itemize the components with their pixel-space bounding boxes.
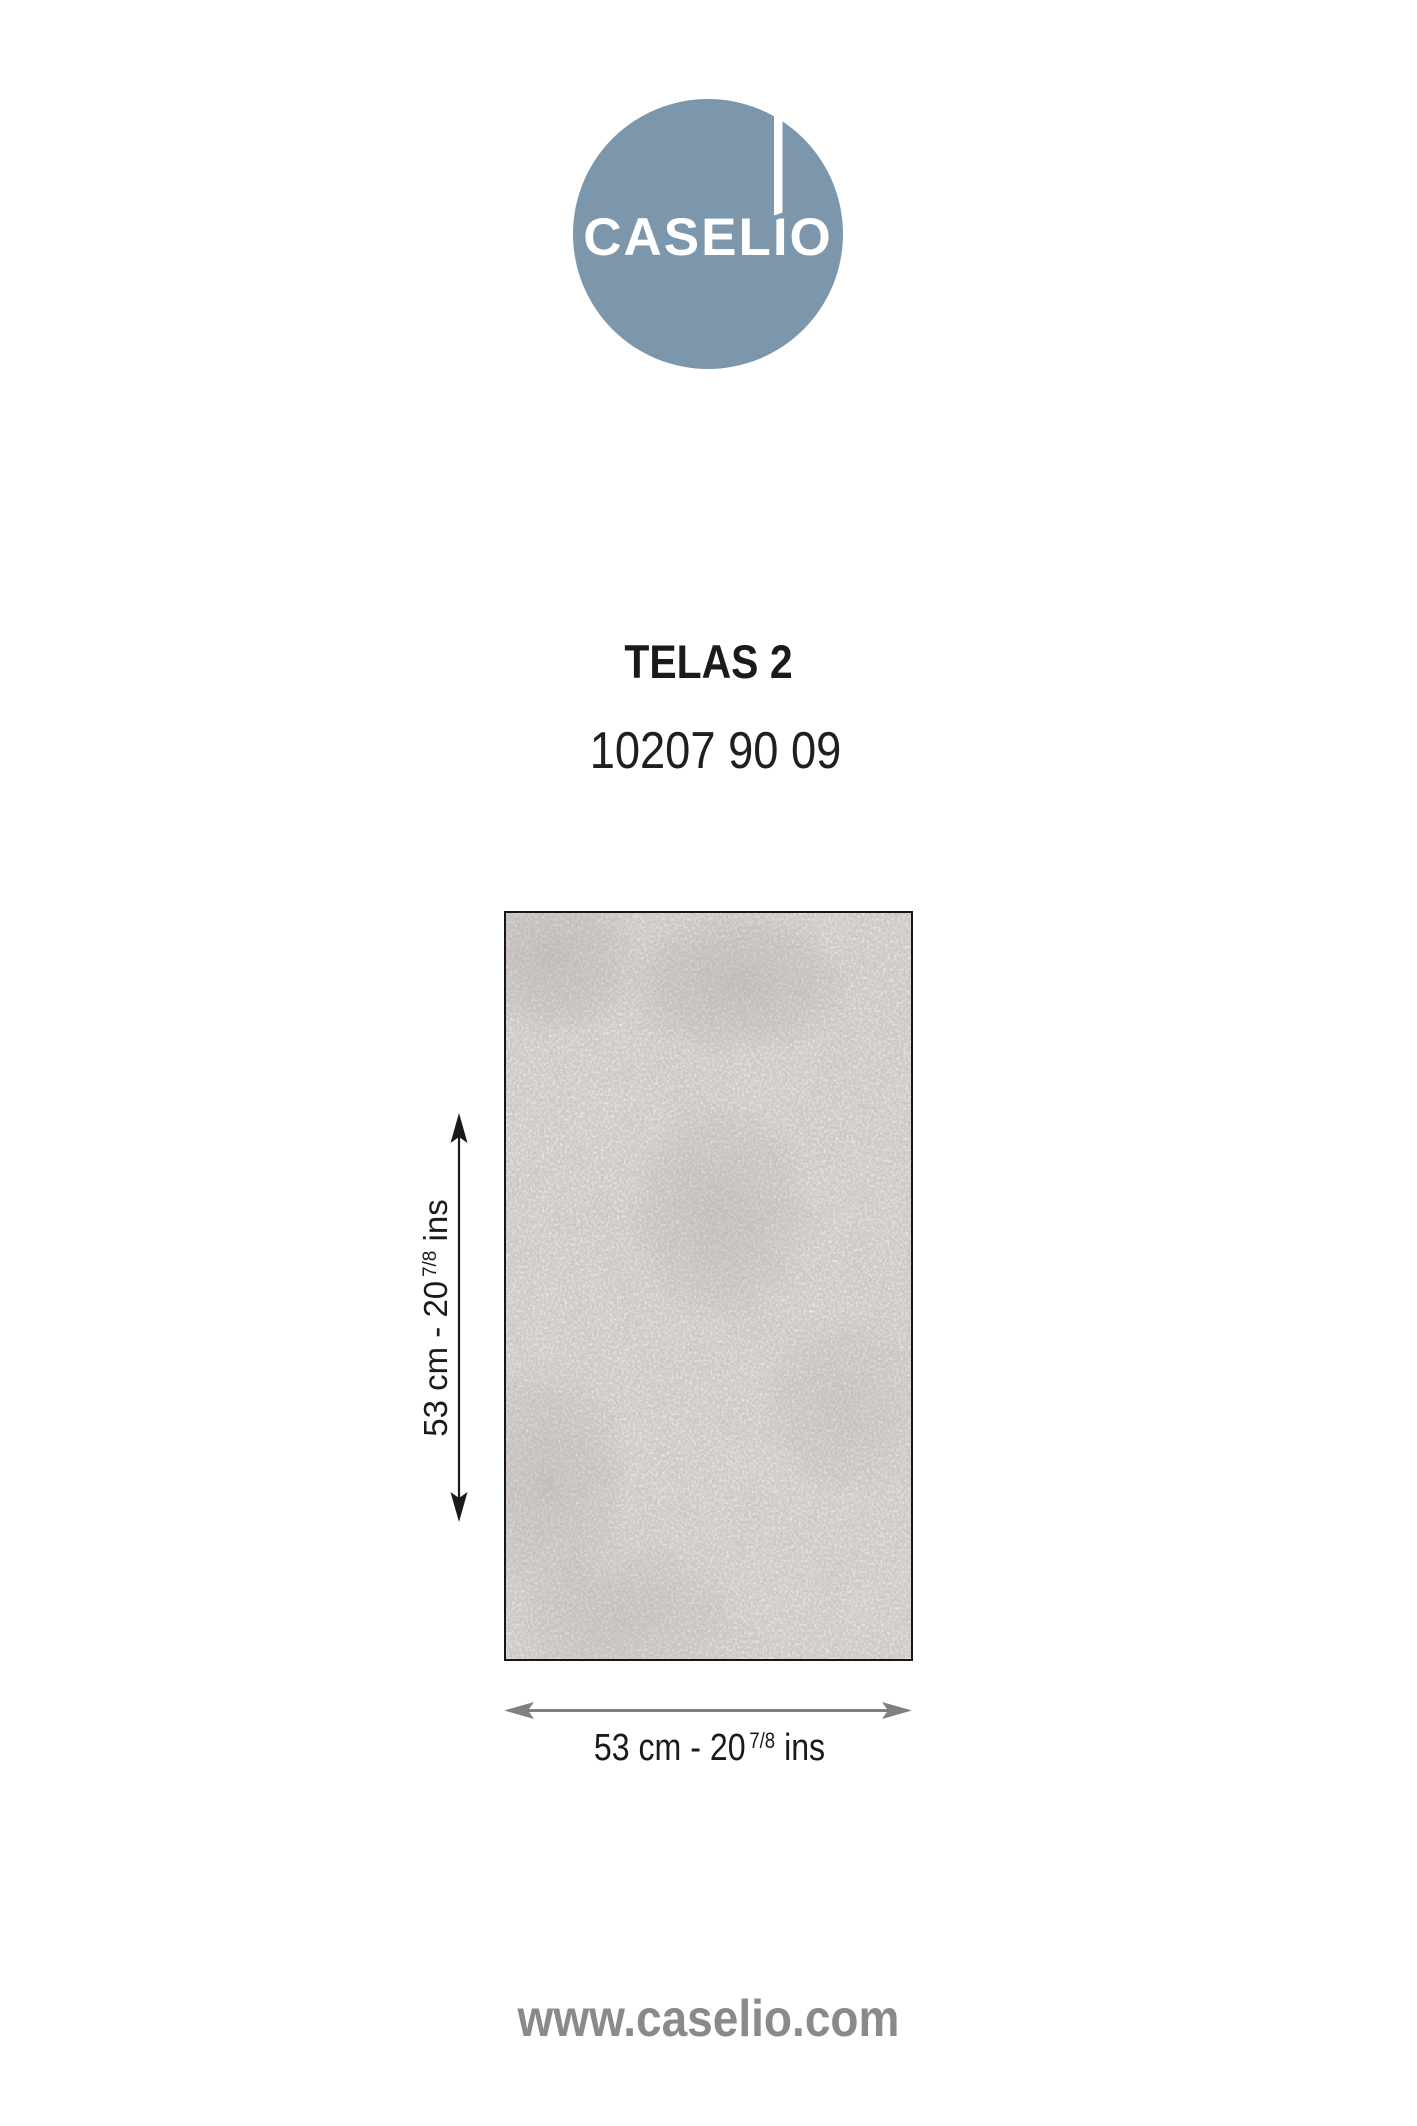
svg-text:CASELIO: CASELIO bbox=[583, 208, 833, 267]
